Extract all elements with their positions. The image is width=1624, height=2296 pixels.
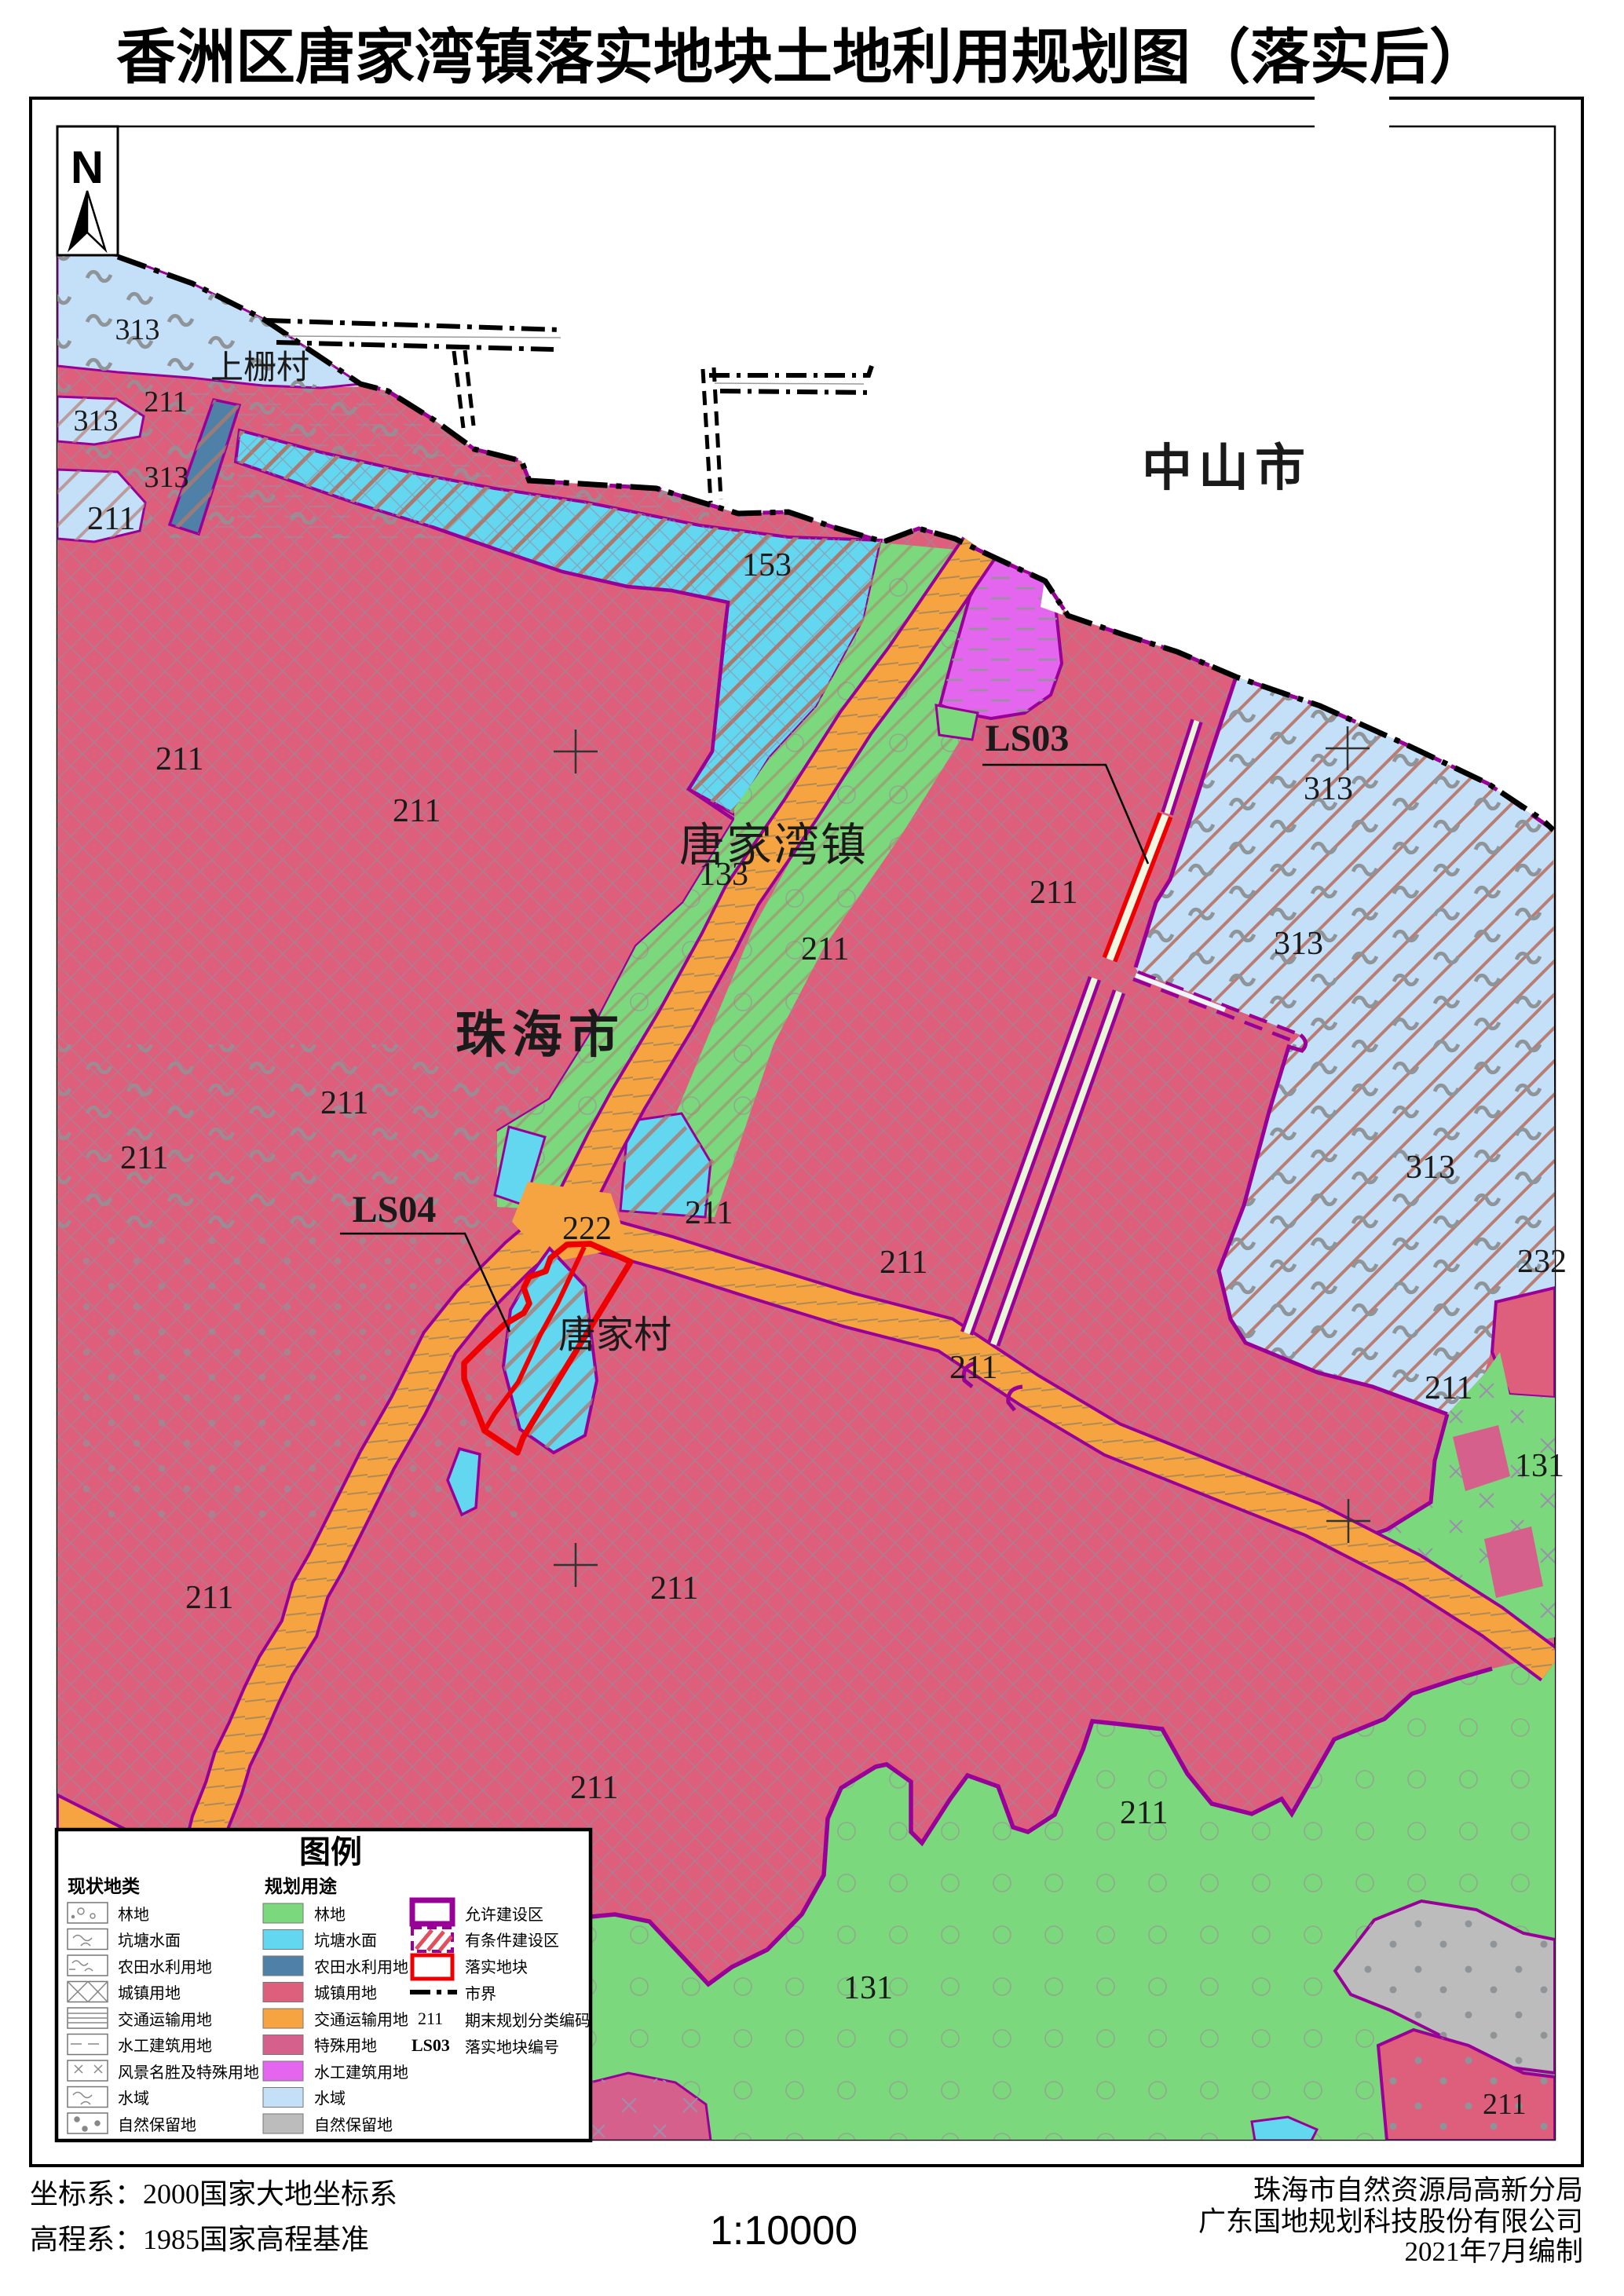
svg-text:现状地类: 现状地类 (68, 1876, 140, 1896)
svg-text:交通运输用地: 交通运输用地 (314, 2011, 408, 2029)
svg-text:香洲区唐家湾镇落实地块土地利用规划图（落实后）: 香洲区唐家湾镇落实地块土地利用规划图（落实后） (116, 25, 1489, 91)
svg-text:211: 211 (120, 1140, 168, 1176)
svg-text:211: 211 (155, 741, 203, 777)
svg-text:农田水利用地: 农田水利用地 (118, 1958, 212, 1976)
svg-text:LS03: LS03 (411, 2035, 450, 2055)
svg-text:232: 232 (1517, 1244, 1567, 1280)
svg-text:上栅村: 上栅村 (210, 350, 309, 386)
svg-text:211: 211 (570, 1770, 618, 1806)
svg-text:1:10000: 1:10000 (710, 2208, 858, 2254)
svg-text:交通运输用地: 交通运输用地 (118, 2011, 212, 2029)
svg-text:N: N (71, 142, 104, 193)
svg-text:允许建设区: 允许建设区 (465, 1906, 543, 1924)
svg-text:有条件建设区: 有条件建设区 (465, 1932, 559, 1950)
svg-text:211: 211 (87, 501, 135, 537)
svg-text:211: 211 (393, 793, 441, 829)
svg-text:林地: 林地 (314, 1906, 346, 1924)
svg-text:广东国地规划科技股份有限公司: 广东国地规划科技股份有限公司 (1198, 2206, 1583, 2237)
svg-text:林地: 林地 (118, 1906, 149, 1924)
svg-text:211: 211 (650, 1570, 698, 1607)
svg-text:131: 131 (1515, 1448, 1564, 1484)
svg-text:自然保留地: 自然保留地 (314, 2116, 393, 2134)
svg-text:水工建筑用地: 水工建筑用地 (118, 2037, 212, 2055)
svg-text:高程系：1985国家高程基准: 高程系：1985国家高程基准 (30, 2224, 369, 2255)
svg-text:坑塘水面: 坑塘水面 (314, 1932, 377, 1950)
svg-text:211: 211 (1483, 2088, 1527, 2121)
svg-text:坑塘水面: 坑塘水面 (118, 1932, 181, 1950)
svg-text:313: 313 (74, 404, 119, 437)
svg-text:133: 133 (699, 857, 748, 893)
svg-text:313: 313 (115, 313, 160, 346)
svg-text:LS03: LS03 (986, 718, 1070, 759)
svg-text:自然保留地: 自然保留地 (118, 2116, 196, 2134)
svg-text:市界: 市界 (465, 1985, 496, 2003)
svg-text:313: 313 (1274, 926, 1323, 962)
svg-text:坐标系：2000国家大地坐标系: 坐标系：2000国家大地坐标系 (30, 2178, 397, 2210)
svg-text:水域: 水域 (118, 2089, 149, 2108)
svg-text:中山市: 中山市 (1142, 441, 1311, 496)
svg-text:153: 153 (742, 547, 792, 583)
svg-text:城镇用地: 城镇用地 (314, 1984, 377, 2002)
svg-text:水工建筑用地: 水工建筑用地 (314, 2064, 408, 2082)
svg-text:313: 313 (1406, 1150, 1455, 1186)
svg-text:期末规划分类编码: 期末规划分类编码 (465, 2012, 591, 2030)
svg-text:211: 211 (185, 1580, 233, 1616)
svg-text:落实地块: 落实地块 (465, 1958, 528, 1976)
svg-text:313: 313 (144, 461, 189, 494)
svg-text:211: 211 (1030, 875, 1077, 911)
svg-text:特殊用地: 特殊用地 (314, 2037, 377, 2055)
svg-text:城镇用地: 城镇用地 (118, 1984, 181, 2002)
svg-text:农田水利用地: 农田水利用地 (314, 1958, 408, 1976)
svg-text:珠海市自然资源局高新分局: 珠海市自然资源局高新分局 (1253, 2175, 1583, 2206)
svg-text:规划用途: 规划用途 (265, 1876, 338, 1896)
svg-text:313: 313 (1304, 771, 1353, 807)
svg-text:落实地块编号: 落实地块编号 (465, 2038, 559, 2057)
svg-text:211: 211 (685, 1195, 733, 1231)
svg-text:211: 211 (1425, 1370, 1472, 1406)
svg-text:211: 211 (144, 386, 188, 419)
svg-text:唐家村: 唐家村 (558, 1314, 671, 1356)
svg-text:131: 131 (843, 1970, 893, 2006)
svg-text:211: 211 (320, 1085, 368, 1121)
svg-text:211: 211 (801, 931, 849, 967)
svg-text:图例: 图例 (299, 1834, 362, 1870)
svg-text:LS04: LS04 (353, 1189, 437, 1230)
svg-text:2021年7月编制: 2021年7月编制 (1404, 2236, 1583, 2267)
svg-text:211: 211 (949, 1350, 997, 1386)
svg-text:211: 211 (1120, 1795, 1168, 1831)
svg-text:珠海市: 珠海市 (455, 1007, 625, 1063)
svg-text:水域: 水域 (314, 2089, 346, 2108)
svg-text:风景名胜及特殊用地: 风景名胜及特殊用地 (118, 2064, 259, 2082)
svg-text:211: 211 (418, 2009, 443, 2028)
svg-text:222: 222 (562, 1211, 612, 1247)
svg-text:211: 211 (880, 1245, 927, 1281)
